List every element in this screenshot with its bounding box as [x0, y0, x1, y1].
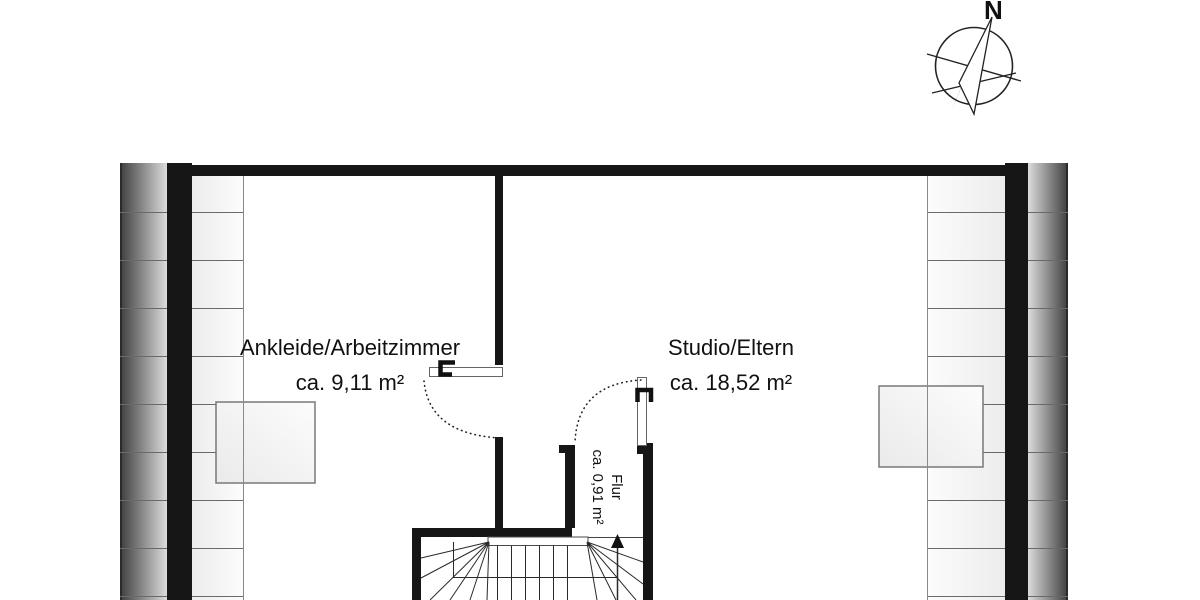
roof-edge-right	[1028, 163, 1068, 600]
room-label-studio: Studio/Eltern ca. 18,52 m²	[601, 330, 861, 400]
room-area: ca. 18,52 m²	[601, 365, 861, 400]
stair-winders-right	[587, 542, 643, 600]
room-label-ankleide: Ankleide/Arbeitzimmer ca. 9,11 m²	[220, 330, 480, 400]
floorplan-canvas: N Ankleide/Arbeitzimmer ca. 9,11 m² Stud…	[0, 0, 1200, 600]
wall-stair-left	[412, 528, 421, 600]
room-area: ca. 0,91 m²	[588, 444, 607, 530]
stair-arrow-head	[611, 534, 624, 548]
wall-flur-left	[565, 445, 575, 528]
wall-center-lower	[495, 437, 503, 528]
staircase	[421, 534, 643, 600]
stair-winders-left	[421, 542, 489, 600]
stairwell-inner-edge	[453, 542, 618, 578]
room-label-flur: Flur ca. 0,91 m²	[588, 444, 626, 530]
compass-rose-icon	[927, 17, 1021, 114]
wall-center-upper	[495, 176, 503, 365]
skylight-right	[879, 386, 983, 467]
door-jamb-mark	[637, 445, 644, 454]
wall-right	[1005, 163, 1028, 600]
door-jamb-mark	[559, 445, 566, 453]
compass-needle-light	[959, 17, 992, 114]
room-name: Ankleide/Arbeitzimmer	[220, 330, 480, 365]
room-name: Studio/Eltern	[601, 330, 861, 365]
room-name: Flur	[607, 444, 626, 530]
wall-top	[167, 165, 1028, 176]
stair-landing	[488, 537, 588, 546]
skylight-left	[216, 402, 315, 483]
compass-north-label: N	[984, 0, 1003, 23]
stair-treads	[498, 546, 568, 600]
wall-flur-right	[643, 443, 653, 600]
roof-edge-left	[120, 163, 167, 600]
room-area: ca. 9,11 m²	[220, 365, 480, 400]
wall-stair-top	[412, 528, 572, 537]
wall-left	[167, 163, 192, 600]
